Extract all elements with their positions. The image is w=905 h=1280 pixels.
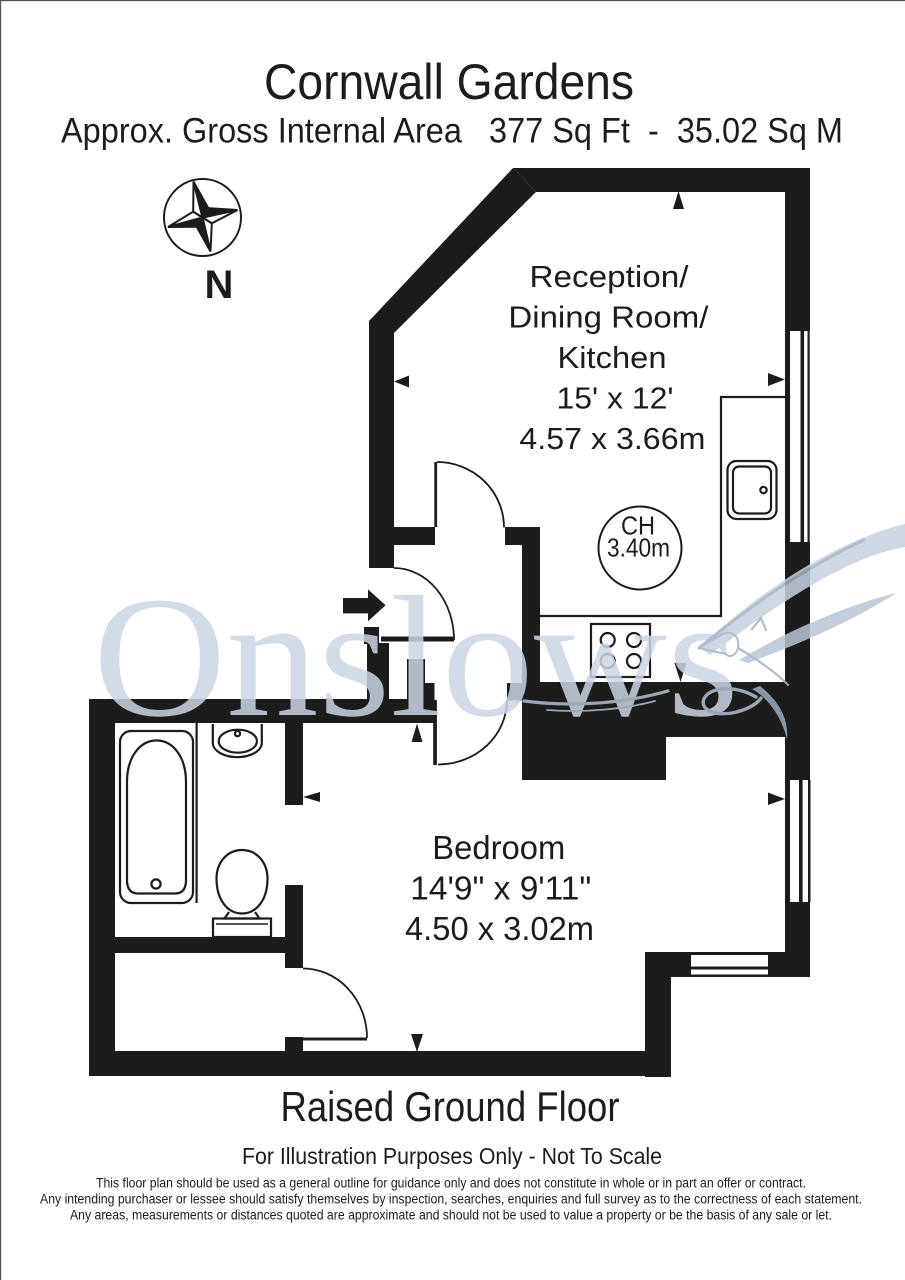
svg-text:14'9" x 9'11": 14'9" x 9'11" [410, 870, 591, 907]
svg-text:4.57 x 3.66m: 4.57 x 3.66m [519, 421, 705, 456]
svg-text:Any areas, measurements or dis: Any areas, measurements or distances quo… [70, 1208, 832, 1223]
svg-text:N: N [205, 263, 234, 307]
svg-text:Kitchen: Kitchen [558, 340, 667, 375]
svg-text:Approx. Gross Internal Area: Approx. Gross Internal Area 377 Sq Ft - … [61, 112, 843, 151]
svg-text:Cornwall Gardens: Cornwall Gardens [264, 54, 634, 110]
svg-text:3.40m: 3.40m [607, 533, 670, 563]
svg-text:Reception/: Reception/ [530, 259, 689, 294]
svg-text:Raised Ground Floor: Raised Ground Floor [281, 1083, 620, 1130]
svg-text:Dining Room/: Dining Room/ [508, 300, 708, 335]
svg-text:Onslows: Onslows [93, 562, 739, 753]
svg-text:Any intending purchaser or les: Any intending purchaser or lessee should… [40, 1192, 862, 1207]
svg-text:4.50 x 3.02m: 4.50 x 3.02m [405, 910, 594, 947]
svg-text:15' x 12': 15' x 12' [557, 381, 674, 416]
svg-text:This floor plan should be used: This floor plan should be used as a gene… [96, 1176, 806, 1191]
svg-text:Bedroom: Bedroom [432, 829, 565, 866]
svg-text:For Illustration Purposes Only: For Illustration Purposes Only - Not To … [242, 1143, 662, 1169]
